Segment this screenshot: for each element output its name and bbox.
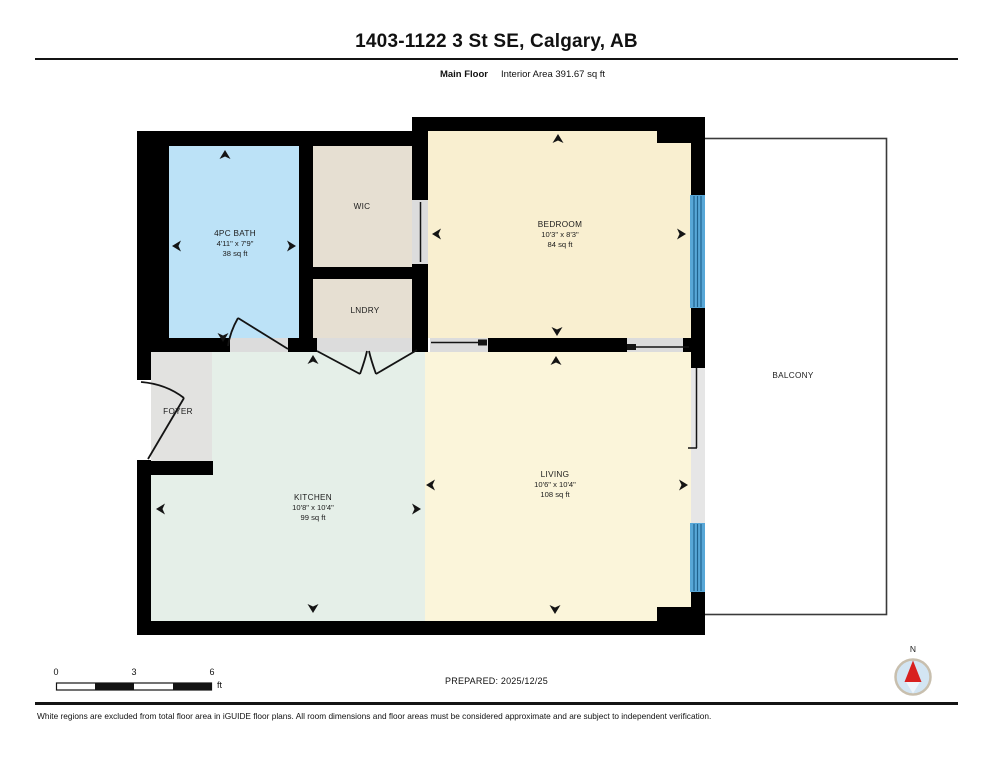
floorplan-drawing: [0, 0, 993, 768]
compass-north-label: N: [905, 644, 921, 654]
room-label-wic: WIC: [312, 202, 412, 212]
living-window: [690, 523, 705, 592]
room-name: FOYER: [128, 407, 228, 417]
prepared-date: PREPARED: 2025/12/25: [0, 676, 993, 686]
floorplan-page: 1403-1122 3 St SE, Calgary, AB Main Floo…: [0, 0, 993, 768]
room-dims: 10'8" x 10'4": [253, 503, 373, 513]
room-label-kitchen: KITCHEN 10'8" x 10'4" 99 sq ft: [253, 493, 373, 523]
footer-disclaimer: White regions are excluded from total fl…: [37, 711, 967, 721]
room-area: 38 sq ft: [175, 249, 295, 259]
room-area: 108 sq ft: [495, 490, 615, 500]
room-label-laundry: LNDRY: [315, 306, 415, 316]
room-name: LNDRY: [315, 306, 415, 316]
room-label-balcony: BALCONY: [743, 371, 843, 381]
room-area: 84 sq ft: [500, 240, 620, 250]
room-name: BALCONY: [743, 371, 843, 381]
room-name: KITCHEN: [253, 493, 373, 503]
room-dims: 10'3" x 8'3": [500, 230, 620, 240]
room-label-foyer: FOYER: [128, 407, 228, 417]
room-area: 99 sq ft: [253, 513, 373, 523]
footer-divider: [35, 702, 958, 705]
room-dims: 10'6" x 10'4": [495, 480, 615, 490]
room-name: 4PC BATH: [175, 229, 295, 239]
patio-slider-threshold: [691, 368, 705, 523]
laundry-door-threshold: [317, 338, 417, 352]
room-label-bedroom: BEDROOM 10'3" x 8'3" 84 sq ft: [500, 220, 620, 250]
room-label-living: LIVING 10'6" x 10'4" 108 sq ft: [495, 470, 615, 500]
room-name: BEDROOM: [500, 220, 620, 230]
bedroom-window: [690, 195, 705, 308]
room-name: WIC: [312, 202, 412, 212]
room-label-bath: 4PC BATH 4'11" x 7'9" 38 sq ft: [175, 229, 295, 259]
room-name: LIVING: [495, 470, 615, 480]
room-dims: 4'11" x 7'9": [175, 239, 295, 249]
